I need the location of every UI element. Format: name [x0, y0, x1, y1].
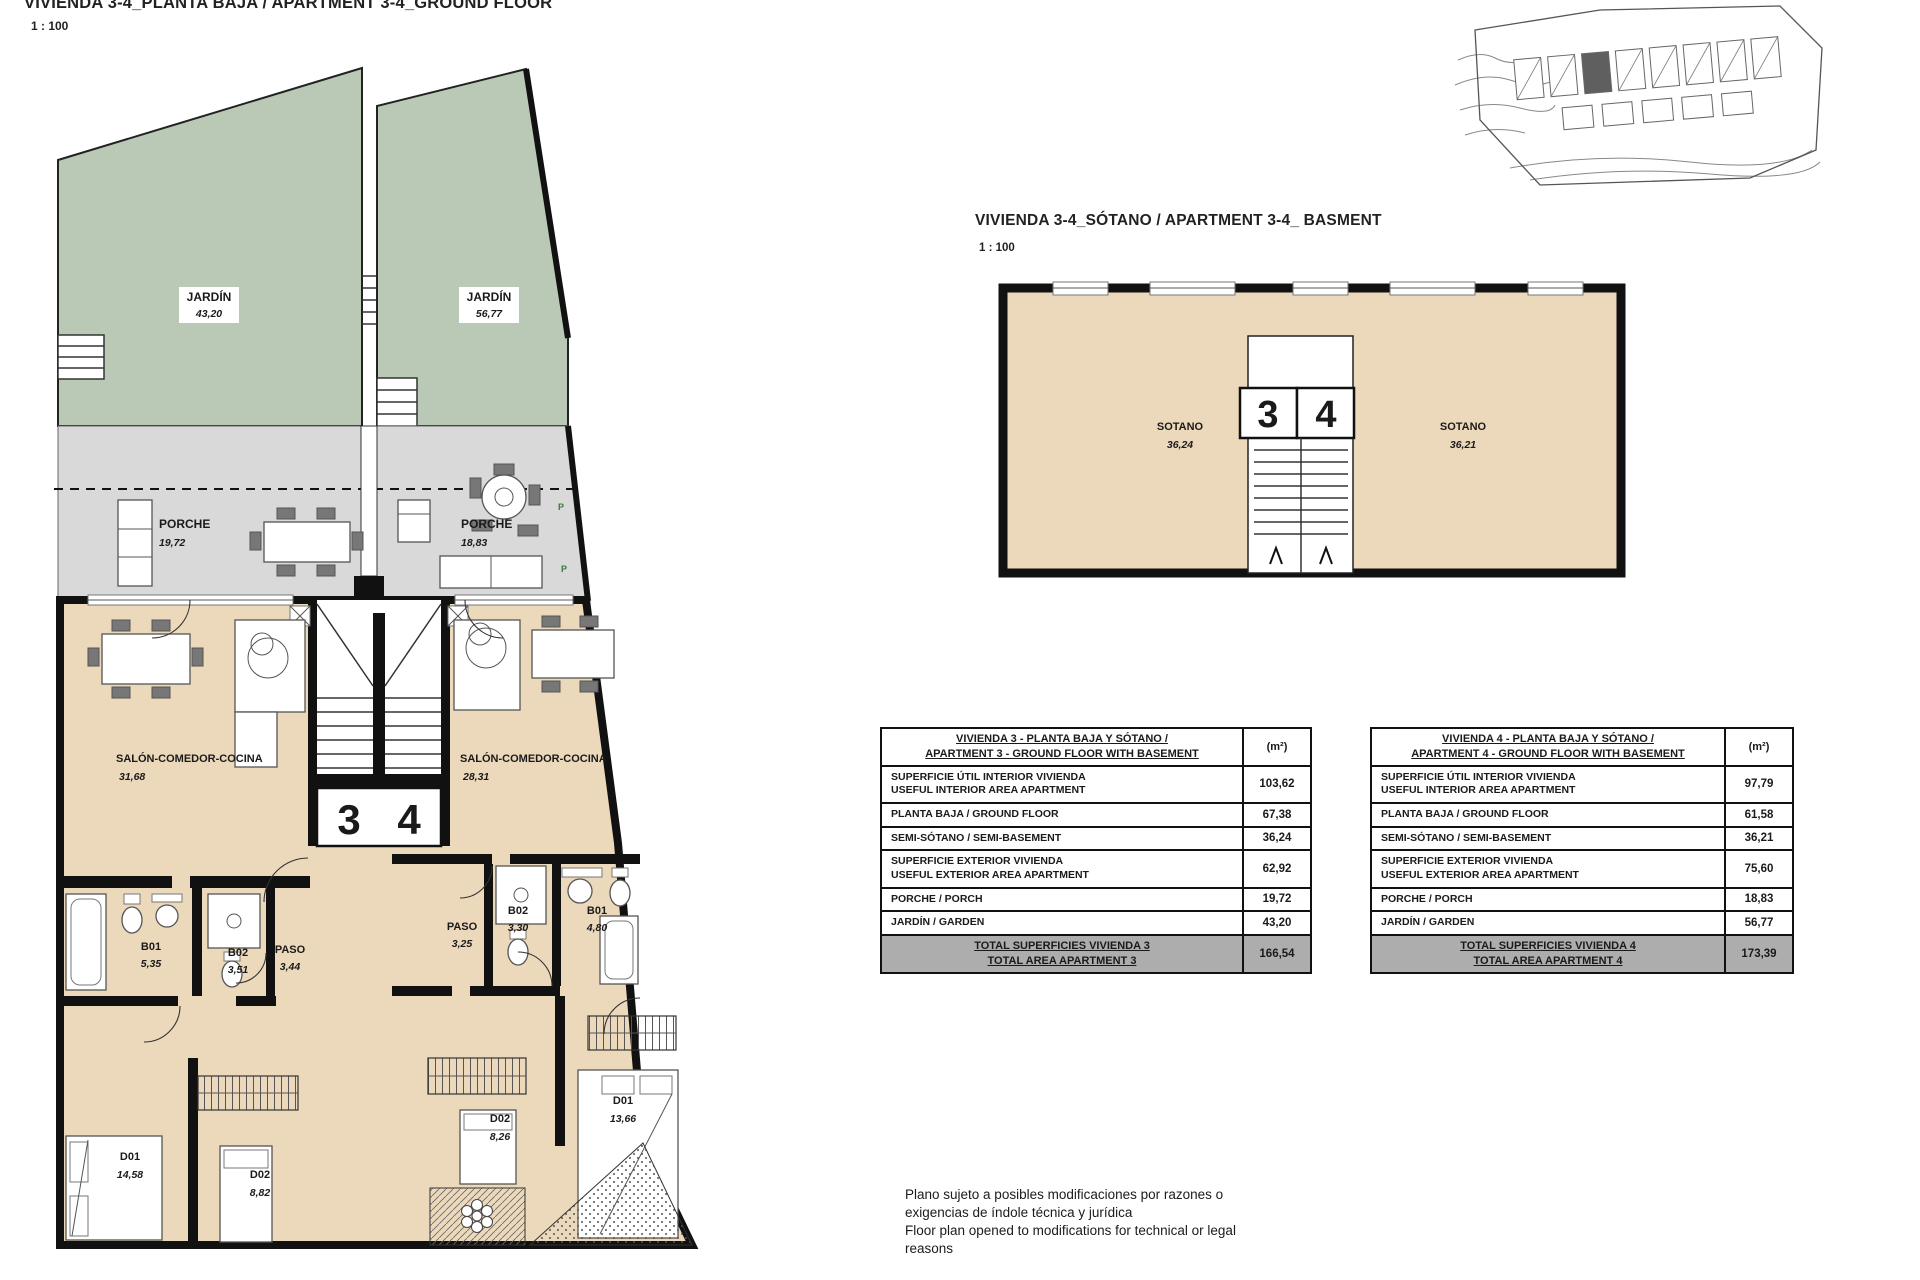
garden-stairs — [362, 276, 377, 324]
porche-right-area: 18,83 — [461, 537, 487, 549]
table-row: SUPERFICIE EXTERIOR VIVIENDAUSEFUL EXTER… — [881, 850, 1311, 887]
table3-title-line2: APARTMENT 3 - GROUND FLOOR WITH BASEMENT — [886, 747, 1238, 762]
table-row: PORCHE / PORCH 19,72 — [881, 888, 1311, 912]
basement-plan: 3 4 SOTANO 36,24 SOTANO 36,21 — [958, 228, 1638, 598]
table4-title-line1: VIVIENDA 4 - PLANTA BAJA Y SÓTANO / — [1376, 732, 1720, 747]
sotano-right-area: 36,21 — [1450, 439, 1476, 451]
unit-number-3: 3 — [337, 796, 360, 843]
table-total-row: TOTAL SUPERFICIES VIVIENDA 3 TOTAL AREA … — [881, 935, 1311, 973]
porche-right-label: PORCHE — [461, 517, 512, 531]
table4-total-value: 173,39 — [1725, 935, 1793, 973]
ground-floor-title: VIVIENDA 3-4_PLANTA BAJA / APARTMENT 3-4… — [24, 0, 552, 13]
b02-right-area: 3,30 — [508, 922, 529, 934]
bed-d01-left — [66, 1136, 162, 1240]
porch: PORCHE 19,72 PORCHE 18,83 P P — [54, 426, 588, 601]
porch-right-armchair — [398, 500, 430, 542]
porche-left-label: PORCHE — [159, 517, 210, 531]
table-row: PLANTA BAJA / GROUND FLOOR 61,58 — [1371, 803, 1793, 827]
porch-left-sofa — [118, 500, 152, 586]
highlighted-unit — [1581, 52, 1611, 94]
jardin-left-area: 43,20 — [195, 308, 222, 320]
porche-left-area: 19,72 — [159, 537, 185, 549]
d02-right-area: 8,26 — [490, 1131, 511, 1143]
b01-right-area: 4,80 — [586, 922, 608, 934]
table-header: VIVIENDA 3 - PLANTA BAJA Y SÓTANO / APAR… — [881, 728, 1311, 766]
floor-plan-sheet: { "colors": { "garden_green": "#bac9b5",… — [0, 0, 1920, 1280]
garden-left: JARDÍN 43,20 — [58, 68, 362, 426]
table-row: JARDÍN / GARDEN 43,20 — [881, 911, 1311, 935]
ground-floor-plan: JARDÍN 43,20 JARDÍN 56,77 — [40, 48, 700, 1258]
table-row: SEMI-SÓTANO / SEMI-BASEMENT 36,24 — [881, 827, 1311, 851]
disclaimer-text: Plano sujeto a posibles modificaciones p… — [905, 1186, 1265, 1258]
jardin-right-area: 56,77 — [476, 308, 503, 320]
table4-unit-header: (m²) — [1725, 728, 1793, 766]
table-total-row: TOTAL SUPERFICIES VIVIENDA 4 TOTAL AREA … — [1371, 935, 1793, 973]
d01-left-label: D01 — [120, 1151, 140, 1163]
table3-total-value: 166,54 — [1243, 935, 1311, 973]
b01-left-area: 5,35 — [141, 958, 162, 970]
table3-unit-header: (m²) — [1243, 728, 1311, 766]
paso-right-area: 3,25 — [452, 938, 473, 950]
table-row: PLANTA BAJA / GROUND FLOOR 67,38 — [881, 803, 1311, 827]
paso-right-label: PASO — [447, 921, 478, 933]
table-row: SEMI-SÓTANO / SEMI-BASEMENT 36,21 — [1371, 827, 1793, 851]
b01-right-label: B01 — [587, 905, 607, 917]
salon-left-area: 31,68 — [119, 771, 145, 783]
table-row: PORCHE / PORCH 18,83 — [1371, 888, 1793, 912]
table-header: VIVIENDA 4 - PLANTA BAJA Y SÓTANO / APAR… — [1371, 728, 1793, 766]
d01-right-label: D01 — [613, 1095, 633, 1107]
porch-right-sofa — [440, 556, 542, 588]
d02-right-label: D02 — [490, 1113, 510, 1125]
drain-mark-2: P — [561, 564, 567, 574]
ground-floor-scale: 1 : 100 — [31, 19, 68, 33]
jardin-right-label: JARDÍN — [467, 289, 512, 304]
table4-title-line2: APARTMENT 4 - GROUND FLOOR WITH BASEMENT — [1376, 747, 1720, 762]
garden-right: JARDÍN 56,77 — [377, 69, 568, 426]
table-row: SUPERFICIE ÚTIL INTERIOR VIVIENDAUSEFUL … — [1371, 766, 1793, 803]
area-table-apartment-4: VIVIENDA 4 - PLANTA BAJA Y SÓTANO / APAR… — [1370, 727, 1794, 974]
salon-right-area: 28,31 — [462, 771, 489, 783]
table3-title-line1: VIVIENDA 3 - PLANTA BAJA Y SÓTANO / — [886, 732, 1238, 747]
b02-left-area: 3,51 — [228, 964, 249, 976]
unit-row — [1514, 37, 1784, 134]
sotano-right-label: SOTANO — [1440, 421, 1487, 433]
stair-core: 3 4 — [290, 600, 468, 846]
area-table-apartment-3: VIVIENDA 3 - PLANTA BAJA Y SÓTANO / APAR… — [880, 727, 1312, 974]
basement-unit-number-4: 4 — [1315, 394, 1336, 436]
site-location-map — [1450, 0, 1840, 195]
b02-left-label: B02 — [228, 947, 248, 959]
jardin-left-label: JARDÍN — [187, 289, 232, 304]
d01-left-area: 14,58 — [117, 1169, 143, 1181]
basement-unit-number-3: 3 — [1257, 394, 1278, 436]
salon-left-label: SALÓN-COMEDOR-COCINA — [116, 752, 263, 765]
table-row: SUPERFICIE EXTERIOR VIVIENDAUSEFUL EXTER… — [1371, 850, 1793, 887]
drain-mark-1: P — [558, 502, 564, 512]
table-row: SUPERFICIE ÚTIL INTERIOR VIVIENDAUSEFUL … — [881, 766, 1311, 803]
interior: 3 4 SALÓN-COMEDOR-CO — [60, 595, 692, 1245]
d01-right-area: 13,66 — [610, 1113, 636, 1125]
paso-left-label: PASO — [275, 944, 306, 956]
sotano-left-area: 36,24 — [1167, 439, 1193, 451]
sotano-left-label: SOTANO — [1157, 421, 1204, 433]
unit-number-4: 4 — [397, 796, 421, 843]
b02-right-label: B02 — [508, 905, 528, 917]
salon-right-label: SALÓN-COMEDOR-COCINA — [460, 752, 607, 765]
b01-left-label: B01 — [141, 941, 161, 953]
unit-row-2 — [1562, 91, 1753, 129]
d02-left-label: D02 — [250, 1169, 270, 1181]
table-row: JARDÍN / GARDEN 56,77 — [1371, 911, 1793, 935]
basement-stair-shaft: 3 4 — [1240, 336, 1354, 573]
d02-left-area: 8,82 — [250, 1187, 271, 1199]
paso-left-area: 3,44 — [280, 961, 301, 973]
